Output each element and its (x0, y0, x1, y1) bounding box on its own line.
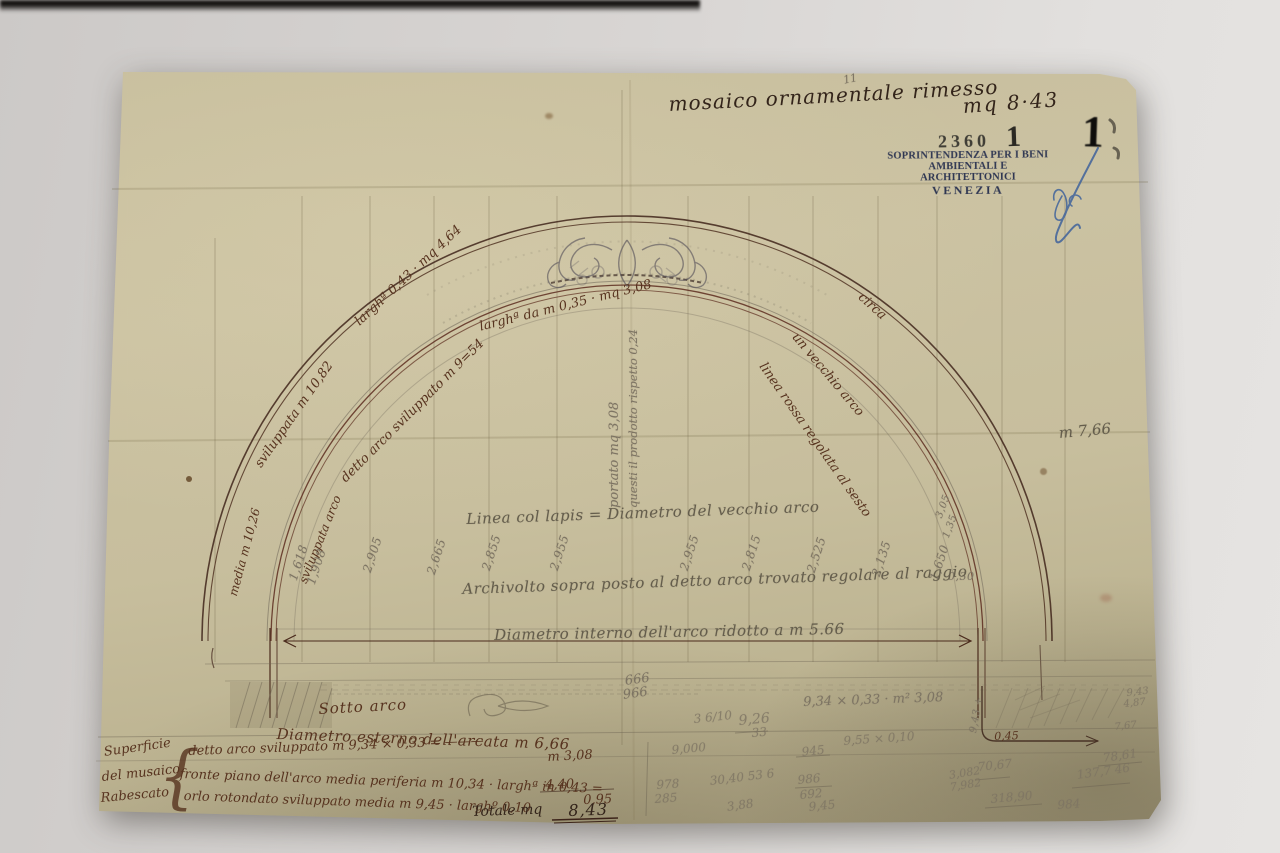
scribble-number: 9,000 (671, 740, 706, 757)
scribble-number: 9,45 (808, 797, 836, 814)
scribble-number: 4,87 (1123, 697, 1146, 710)
center-vertical-note: portato mq 3,08 (607, 402, 622, 508)
office-stamp: SOPRINTENDENZA PER I BENI AMBIENTALI E A… (884, 149, 1052, 198)
photograph-of-archival-drawing: mosaico ornamentale rimesso mq 8·43 11 2… (0, 0, 1280, 853)
corner-digit-stamp: 1 (1081, 106, 1105, 158)
scribble-number: 986 (797, 771, 821, 787)
scribble-number: 285 (654, 790, 678, 806)
total-value: 8,43 (568, 800, 608, 820)
blue-pencil-mark (1054, 148, 1098, 242)
stamp-smudges (1110, 120, 1119, 158)
office-stamp-line3: VENEZIA (884, 182, 1052, 198)
calc-row-result: m 3,08 (547, 748, 593, 765)
total-label: Totale mq (472, 802, 543, 820)
scribble-number: 984 (1057, 796, 1081, 812)
scribble-number: 945 (801, 743, 825, 759)
office-stamp-line2: AMBIENTALI E ARCHITETTONICI (884, 160, 1052, 183)
center-vertical-note: questi il prodotto rispetto 0,24 (626, 329, 640, 508)
scribble-number: 7,67 (1114, 720, 1137, 733)
corner-measure: 0,45 (994, 729, 1019, 743)
scribble-number: 33 (751, 725, 767, 740)
scroll-doodle (468, 694, 548, 716)
calc-row-result: 4,40 (545, 777, 574, 793)
